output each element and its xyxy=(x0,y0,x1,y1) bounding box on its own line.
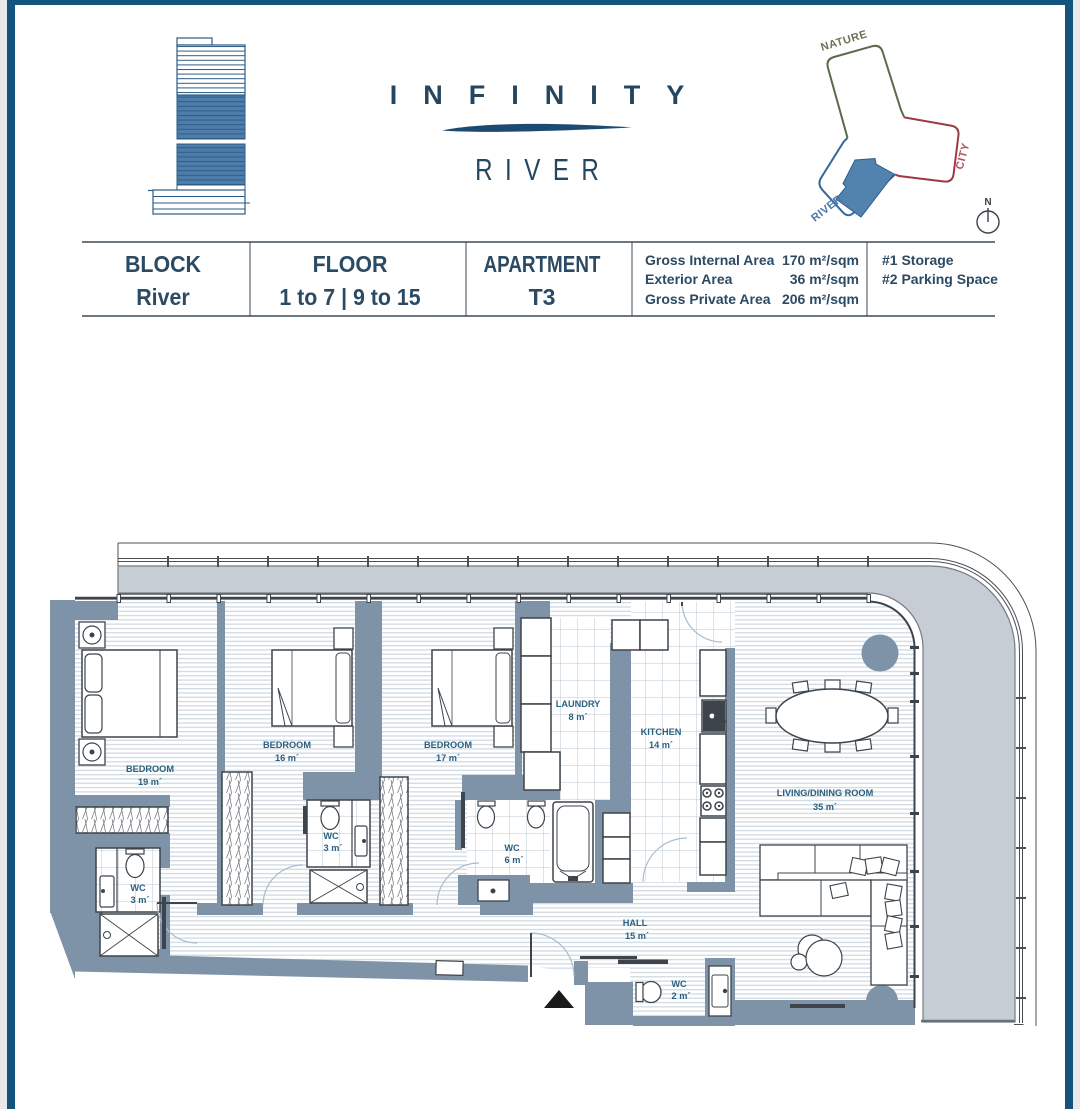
svg-text:15 m´: 15 m´ xyxy=(625,931,649,941)
svg-text:Gross Internal Area: Gross Internal Area xyxy=(645,252,775,268)
svg-text:FLOOR: FLOOR xyxy=(313,251,388,277)
svg-text:LAUNDRY: LAUNDRY xyxy=(556,699,601,709)
svg-text:WC: WC xyxy=(504,843,520,853)
svg-text:RIVER: RIVER xyxy=(475,152,611,187)
svg-text:Exterior Area: Exterior Area xyxy=(645,271,733,287)
svg-text:HALL: HALL xyxy=(623,918,648,928)
svg-text:T3: T3 xyxy=(529,284,556,310)
svg-text:8 m´: 8 m´ xyxy=(569,712,588,722)
svg-text:INFINITY: INFINITY xyxy=(390,80,711,110)
svg-text:#1 Storage: #1 Storage xyxy=(882,252,954,268)
svg-text:WC: WC xyxy=(130,883,146,893)
svg-text:WC: WC xyxy=(323,831,339,841)
svg-text:17 m´: 17 m´ xyxy=(436,753,460,763)
svg-text:BEDROOM: BEDROOM xyxy=(263,740,311,750)
svg-text:APARTMENT: APARTMENT xyxy=(484,252,601,277)
svg-text:3 m´: 3 m´ xyxy=(324,843,343,853)
svg-text:14 m´: 14 m´ xyxy=(649,740,673,750)
svg-text:35 m´: 35 m´ xyxy=(813,802,837,812)
svg-text:3 m´: 3 m´ xyxy=(131,895,150,905)
svg-text:LIVING/DINING ROOM: LIVING/DINING ROOM xyxy=(777,788,874,798)
svg-text:#2 Parking Space: #2 Parking Space xyxy=(882,271,998,287)
svg-text:16 m´: 16 m´ xyxy=(275,753,299,763)
svg-text:BEDROOM: BEDROOM xyxy=(424,740,472,750)
svg-text:BLOCK: BLOCK xyxy=(125,251,201,277)
svg-text:BEDROOM: BEDROOM xyxy=(126,764,174,774)
svg-text:6 m´: 6 m´ xyxy=(505,855,524,865)
svg-text:River: River xyxy=(136,284,190,310)
svg-text:2 m´: 2 m´ xyxy=(672,991,691,1001)
svg-text:206 m²/sqm: 206 m²/sqm xyxy=(782,291,859,307)
svg-text:1 to 7 | 9 to 15: 1 to 7 | 9 to 15 xyxy=(279,284,420,310)
svg-text:KITCHEN: KITCHEN xyxy=(641,727,682,737)
svg-text:Gross Private Area: Gross Private Area xyxy=(645,291,771,307)
svg-text:N: N xyxy=(984,197,991,208)
svg-text:WC: WC xyxy=(671,979,687,989)
svg-text:36 m²/sqm: 36 m²/sqm xyxy=(790,271,859,287)
svg-text:170 m²/sqm: 170 m²/sqm xyxy=(782,252,859,268)
svg-text:19 m´: 19 m´ xyxy=(138,777,162,787)
